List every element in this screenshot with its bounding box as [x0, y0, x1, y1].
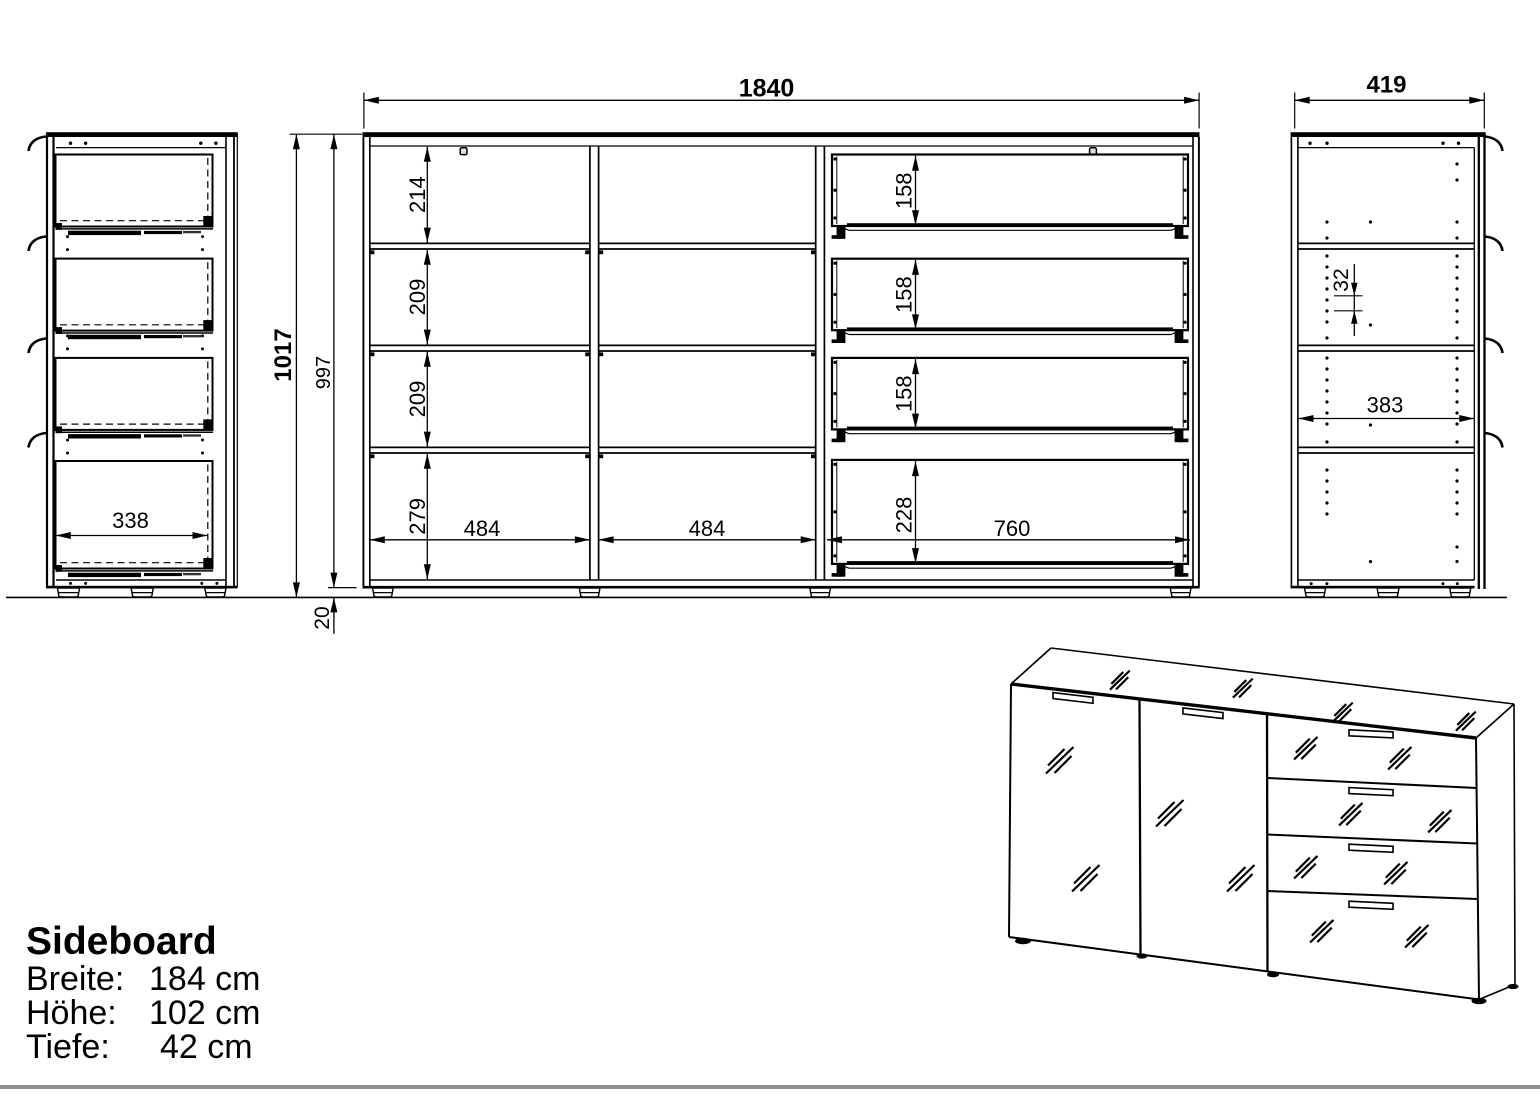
svg-text:158: 158 [892, 276, 917, 313]
svg-text:209: 209 [405, 381, 430, 418]
svg-text:214: 214 [405, 176, 430, 213]
svg-text:484: 484 [689, 516, 726, 541]
svg-text:1840: 1840 [739, 75, 795, 103]
svg-text:20: 20 [311, 606, 334, 629]
svg-text:32: 32 [1330, 268, 1353, 291]
svg-text:419: 419 [1366, 72, 1406, 99]
svg-text:158: 158 [892, 172, 917, 209]
svg-text:279: 279 [405, 498, 430, 535]
svg-text:484: 484 [464, 516, 501, 541]
svg-text:338: 338 [112, 508, 149, 533]
svg-text:383: 383 [1367, 393, 1404, 418]
svg-text:228: 228 [892, 497, 917, 534]
svg-text:760: 760 [994, 516, 1031, 541]
svg-text:1017: 1017 [270, 328, 297, 381]
svg-text:997: 997 [313, 356, 335, 389]
svg-text:158: 158 [892, 375, 917, 412]
svg-text:209: 209 [405, 279, 430, 316]
